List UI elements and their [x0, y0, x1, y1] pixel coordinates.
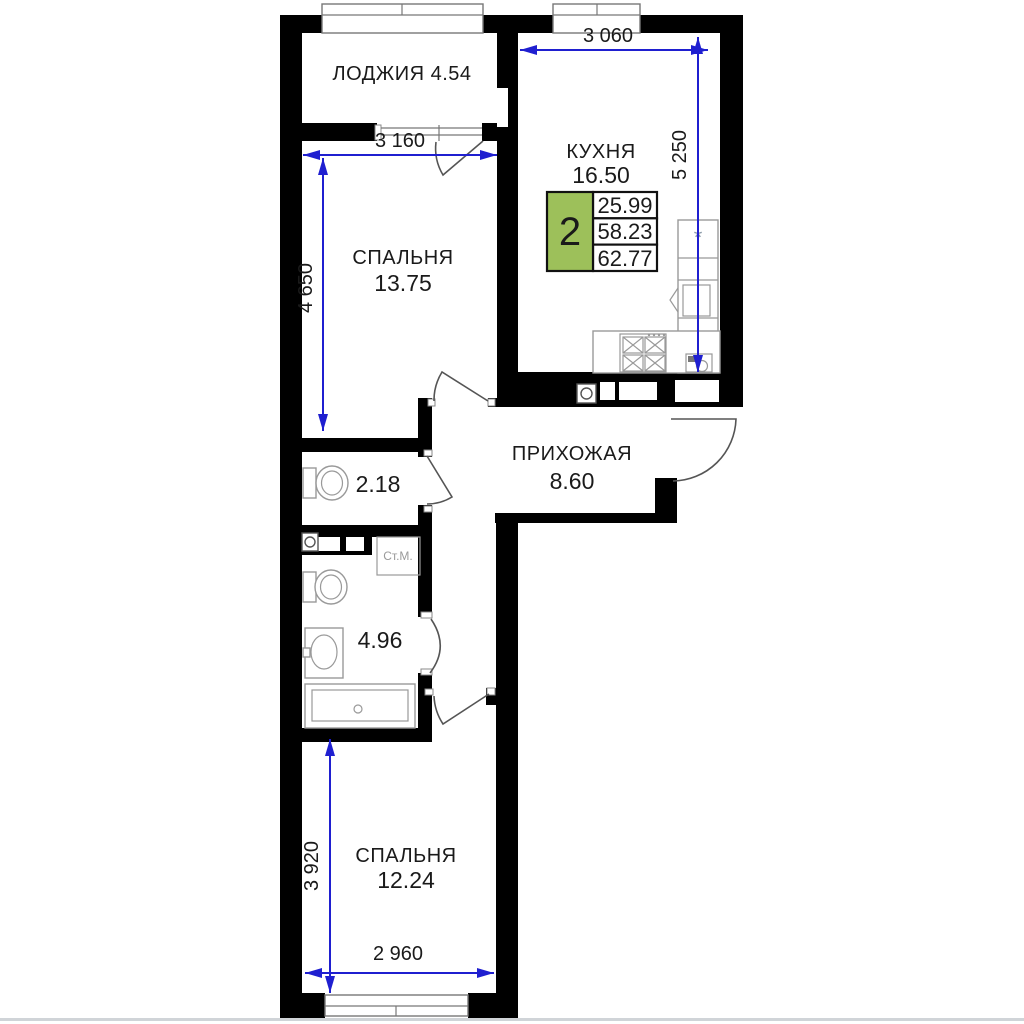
washing-machine-icon: Ст.М. [377, 537, 420, 575]
bathroom-area: 4.96 [358, 627, 403, 653]
bedroom2-name: СПАЛЬНЯ [355, 845, 456, 867]
sink-icon [303, 628, 343, 678]
dim-label: 4 650 [295, 263, 317, 313]
washing-machine-label: Ст.М. [383, 549, 413, 563]
bedroom1-door-swing [434, 372, 488, 401]
kitchen-name: КУХНЯ [566, 141, 635, 163]
dim-label: 3 160 [375, 130, 425, 152]
room-labels: ЛОДЖИЯ 4.54 КУХНЯ 16.50 СПАЛЬНЯ 13.75 ПР… [332, 63, 635, 893]
dimension-bedroom2-width: 2 960 [305, 943, 494, 978]
wc-door-swing [427, 456, 452, 504]
dimension-bedroom2-height: 3 920 [301, 739, 335, 993]
floorplan-canvas: Ст.М. * [0, 0, 1024, 1024]
door-jambs [421, 399, 495, 695]
bottom-edge-line [0, 1018, 1024, 1021]
info-value-total: 62.77 [597, 246, 652, 271]
dim-label: 2 960 [373, 943, 423, 965]
bedroom1-area: 13.75 [374, 270, 432, 296]
wc-area: 2.18 [356, 471, 401, 497]
hallway-area: 8.60 [550, 468, 595, 494]
kitchen-area: 16.50 [572, 162, 630, 188]
rooms-count: 2 [559, 210, 581, 254]
bedroom2-window [325, 995, 468, 1016]
kitchen-bottom-counter [593, 331, 720, 373]
dim-label: 3 920 [301, 841, 323, 891]
bathroom-door-swing [430, 619, 440, 673]
entrance-door-swing [671, 419, 736, 481]
bedroom2-door-swing [434, 694, 489, 724]
loggia-label: ЛОДЖИЯ 4.54 [332, 63, 471, 85]
toilet-icon [303, 570, 347, 604]
bedroom2-area: 12.24 [377, 867, 435, 893]
toilet-icon [303, 466, 348, 500]
dim-label: 3 060 [583, 25, 633, 47]
balcony-door-swing [436, 141, 483, 175]
info-value-area: 58.23 [597, 219, 652, 244]
hallway-name: ПРИХОЖАЯ [512, 443, 632, 465]
dim-label: 5 250 [669, 130, 691, 180]
bathtub-icon [305, 684, 415, 728]
info-box: 2 25.99 58.23 62.77 [547, 192, 657, 271]
info-value-living: 25.99 [597, 193, 652, 218]
bedroom1-name: СПАЛЬНЯ [352, 247, 453, 269]
loggia-window [322, 4, 483, 33]
floorplan-drawing: Ст.М. * [0, 0, 1024, 1024]
